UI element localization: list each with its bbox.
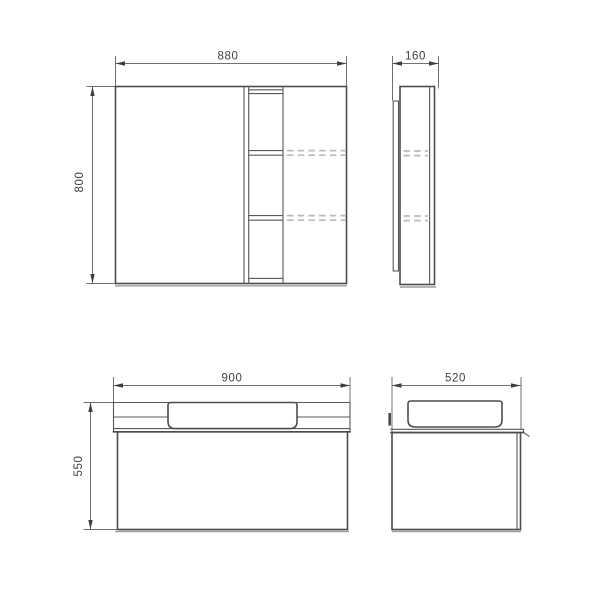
dim-mirror-front-width: 880 [116, 51, 347, 87]
vanity-side-body-outline [392, 433, 521, 530]
countertop-drip-edge [523, 432, 529, 436]
mirror-cabinet-outline [116, 87, 347, 284]
arrowhead-bottom [88, 520, 92, 530]
dim-label-mirror-front-width: 880 [218, 51, 239, 63]
dim-label-mirror-front-height: 800 [74, 172, 86, 193]
dim-mirror-front-height: 800 [74, 87, 116, 284]
arrowhead-left [114, 383, 124, 387]
arrowhead-bottom [90, 274, 94, 284]
vanity-side-view: 520 [390, 373, 529, 532]
arrowhead-top [90, 87, 94, 97]
hidden-shelves-right-door [287, 151, 346, 221]
dim-label-mirror-side-depth: 160 [405, 51, 426, 63]
arrowhead-right [341, 383, 351, 387]
wall-mounting-rail [393, 101, 398, 271]
dim-vanity-front-height: 550 [73, 403, 118, 530]
vanity-front-view: 900 550 [73, 373, 350, 532]
arrowhead-top [88, 403, 92, 413]
arrowhead-right [337, 61, 347, 65]
dim-vanity-front-width: 900 [114, 373, 351, 403]
arrowhead-left [392, 383, 402, 387]
arrowhead-right [511, 383, 521, 387]
shelf-column [249, 90, 283, 279]
arrowhead-left [393, 61, 403, 65]
washbasin-side-outline [408, 401, 502, 427]
dim-label-vanity-front-width: 900 [222, 373, 243, 385]
arrowhead-left [116, 61, 126, 65]
mirror-cabinet-front-view: 880 800 [74, 51, 347, 286]
arrowhead-right [429, 61, 439, 65]
hidden-shelves-side [404, 151, 429, 221]
dim-label-vanity-front-height: 550 [73, 456, 85, 477]
washbasin-front-outline [168, 403, 297, 429]
mirror-cabinet-side-view: 160 [393, 51, 439, 288]
vanity-body-outline [118, 432, 348, 530]
dim-label-vanity-side-depth: 520 [445, 373, 466, 385]
technical-drawing-canvas: 880 800 [0, 0, 600, 600]
